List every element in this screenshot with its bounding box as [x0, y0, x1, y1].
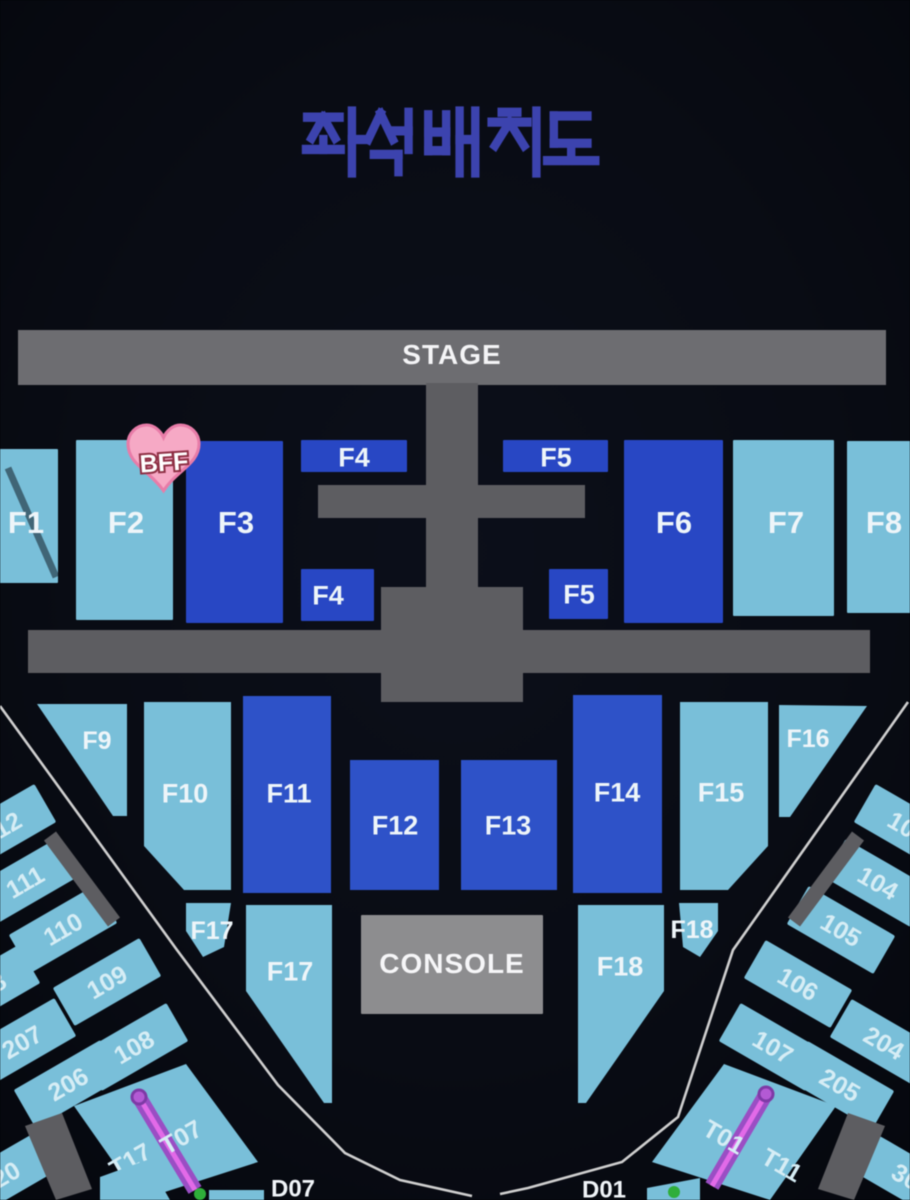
- svg-text:F9: F9: [82, 727, 111, 755]
- svg-text:F6: F6: [656, 505, 692, 540]
- svg-text:F10: F10: [162, 778, 209, 808]
- svg-text:F4: F4: [312, 580, 344, 610]
- svg-text:F1: F1: [8, 505, 44, 540]
- svg-text:F18: F18: [597, 951, 644, 981]
- svg-text:F16: F16: [786, 725, 829, 753]
- svg-text:F13: F13: [485, 810, 532, 840]
- svg-text:F14: F14: [594, 777, 641, 807]
- svg-text:F2: F2: [108, 505, 144, 540]
- svg-text:F17: F17: [190, 917, 233, 945]
- svg-text:D01: D01: [582, 1176, 626, 1200]
- svg-text:F7: F7: [768, 505, 804, 540]
- svg-text:F4: F4: [338, 442, 370, 472]
- svg-text:F12: F12: [372, 810, 419, 840]
- svg-text:F18: F18: [670, 916, 713, 944]
- svg-text:F8: F8: [866, 505, 902, 540]
- svg-text:F3: F3: [218, 505, 254, 540]
- svg-text:D07: D07: [271, 1175, 315, 1200]
- svg-text:F11: F11: [266, 778, 311, 808]
- svg-text:F17: F17: [267, 956, 314, 986]
- svg-text:F5: F5: [563, 579, 595, 609]
- svg-text:F15: F15: [698, 777, 745, 807]
- svg-text:F5: F5: [540, 442, 572, 472]
- svg-text:STAGE: STAGE: [402, 339, 501, 370]
- svg-text:BFF: BFF: [139, 447, 189, 478]
- svg-text:CONSOLE: CONSOLE: [379, 948, 524, 979]
